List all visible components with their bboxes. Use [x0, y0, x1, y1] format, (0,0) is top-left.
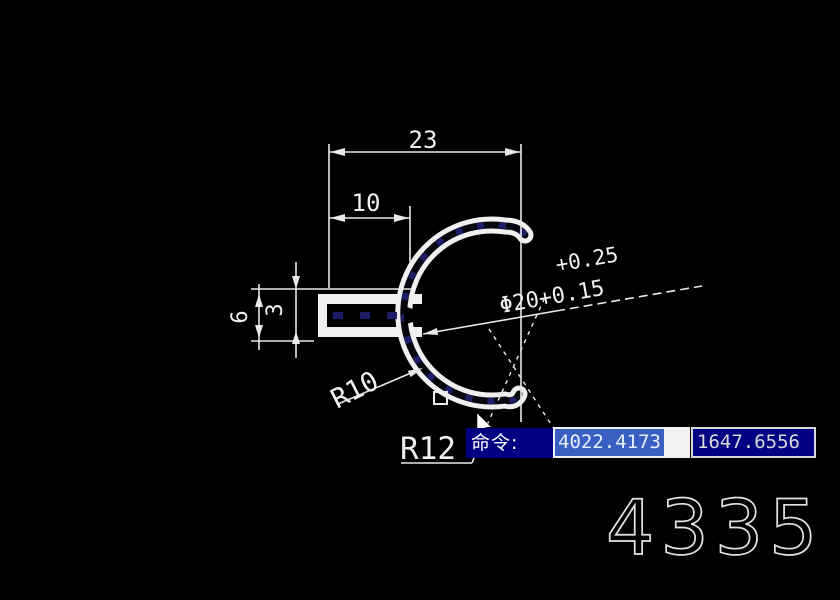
arrowhead	[423, 328, 438, 335]
profile-cross-section	[318, 225, 525, 401]
arrowhead	[255, 325, 263, 338]
arrowhead	[394, 214, 409, 222]
dim-arm-length: 10	[329, 189, 410, 222]
dim-arm-height: 6	[228, 284, 263, 350]
dim-total-width: 23	[329, 126, 521, 156]
dim-arm-height-text: 6	[228, 310, 253, 323]
coordinate-y-display[interactable]: 1647.6556	[691, 427, 816, 458]
extension-lines	[251, 144, 521, 422]
dim-total-width-text: 23	[409, 126, 438, 154]
dim-slot-height: 3	[263, 262, 300, 358]
dim-arm-length-text: 10	[352, 189, 381, 217]
dim-inner-radius: R10	[326, 365, 423, 415]
arrowhead	[292, 276, 300, 289]
arrowhead	[292, 331, 300, 344]
coordinate-x-value: 4022.4173	[555, 429, 664, 456]
cad-application-window: 23 10 6 3 +0.25 Φ20+0.	[0, 0, 840, 600]
dim-outer-radius-text: R12	[400, 431, 456, 467]
drawing-viewport[interactable]: 23 10 6 3 +0.25 Φ20+0.	[0, 0, 840, 600]
arm-end-cap	[318, 294, 327, 337]
arrowhead	[330, 148, 345, 156]
coordinate-x-display[interactable]: 4022.4173	[553, 427, 690, 458]
arm-ring-junction-notch	[404, 306, 431, 325]
arrowhead	[330, 214, 345, 222]
arrowhead	[255, 294, 263, 307]
dim-tolerance-upper-text: +0.25	[554, 242, 620, 277]
command-prompt[interactable]: 命令:	[466, 428, 557, 458]
dim-inner-radius-text: R10	[326, 365, 384, 415]
dim-slot-height-text: 3	[263, 303, 288, 316]
part-number-text: 4335	[606, 483, 823, 572]
dim-diameter: +0.25 Φ20+0.15	[423, 242, 702, 335]
arrowhead	[505, 148, 520, 156]
